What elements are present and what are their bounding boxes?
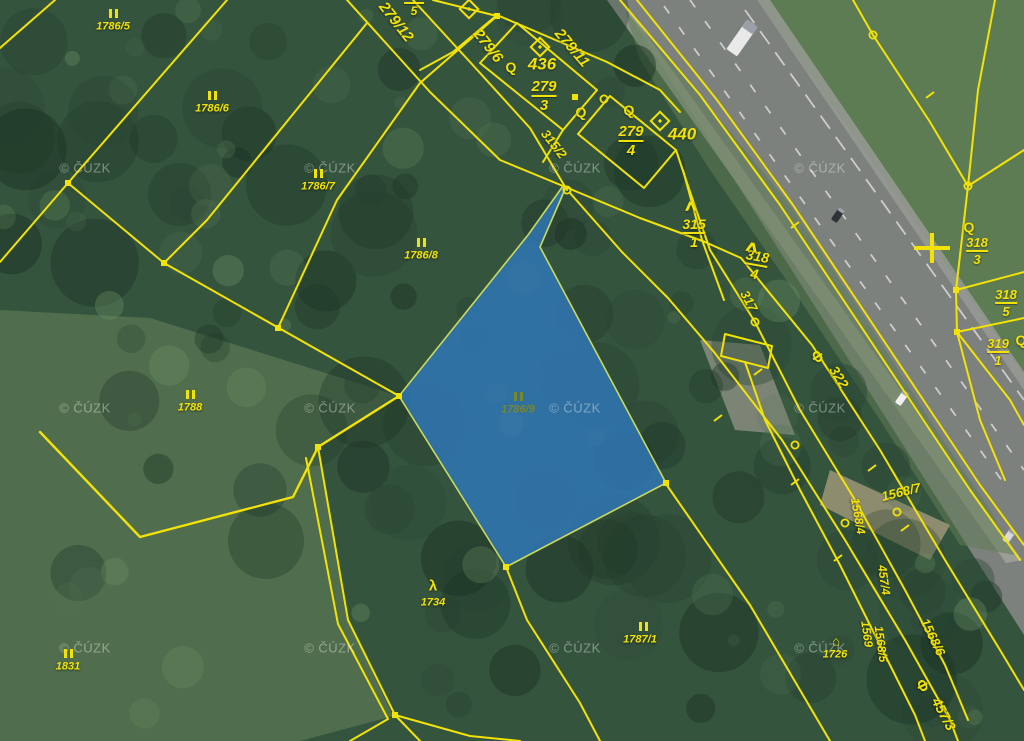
map-canvas[interactable] <box>0 0 1024 741</box>
boundary-point-square <box>954 329 960 335</box>
boundary-point-square <box>663 480 669 486</box>
boundary-point-square <box>161 260 167 266</box>
parcel-boundary-line <box>395 715 520 741</box>
boundary-point-square <box>275 325 281 331</box>
boundary-point-square <box>315 444 321 450</box>
map-viewport[interactable]: © ČÚZK© ČÚZK© ČÚZK© ČÚZK© ČÚZK© ČÚZK© ČÚ… <box>0 0 1024 741</box>
boundary-point-square <box>494 13 500 19</box>
boundary-point-square <box>953 287 959 293</box>
boundary-point-square <box>396 393 402 399</box>
boundary-point-square <box>503 564 509 570</box>
boundary-tick <box>714 415 722 421</box>
boundary-point-square <box>65 180 71 186</box>
boundary-point-circle <box>841 519 848 526</box>
parcel-boundary-line <box>543 130 563 162</box>
boundary-point-square <box>392 712 398 718</box>
parcel-boundary-line <box>433 0 497 16</box>
boundary-point-square <box>572 94 578 100</box>
